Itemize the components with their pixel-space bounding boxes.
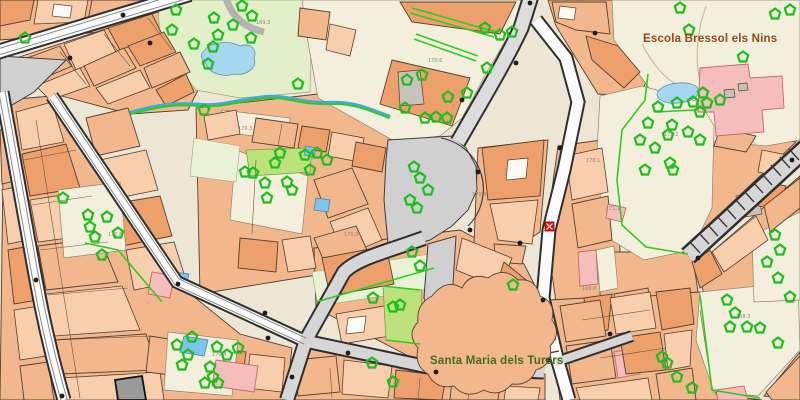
spot-height: 171.1 [606,206,620,212]
poi-label-church: Santa Maria dels Turers [430,355,564,367]
spot-height: 170.4 [472,192,486,198]
spot-height: 170.2 [664,132,678,138]
spot-height: 168.3 [736,314,750,320]
spot-height: 169.3 [256,20,270,26]
map-viewport[interactable]: Escola Bressol els Nins Santa Maria dels… [0,0,800,400]
poi-label-school: Escola Bressol els Nins [643,33,777,45]
spot-height: 170.6 [428,58,442,64]
spot-height: 170.9 [344,232,358,238]
spot-height: 170.3 [238,126,252,132]
spot-height: 170.4 [212,352,226,358]
map-canvas[interactable]: Escola Bressol els Nins Santa Maria dels… [0,0,800,400]
spot-height: 170.1 [586,158,600,164]
spot-height: 170.8 [108,232,122,238]
spot-height: 169.8 [582,286,596,292]
red-incident-marker[interactable] [545,222,554,231]
